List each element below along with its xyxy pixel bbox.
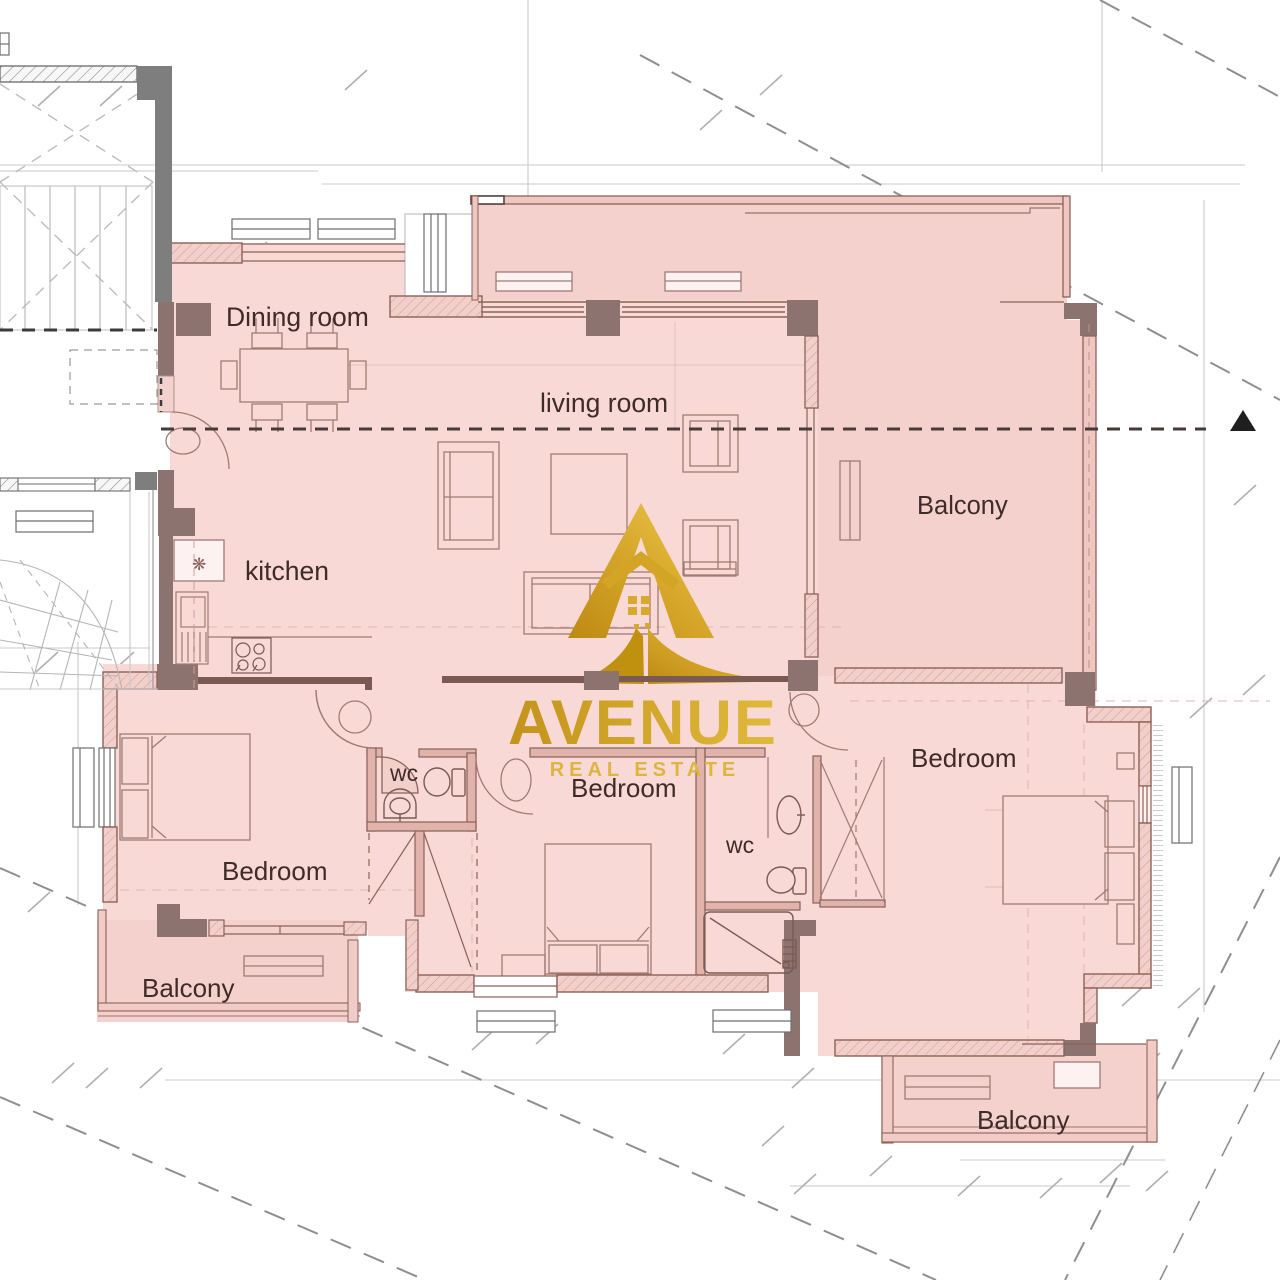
svg-text:living room: living room bbox=[540, 388, 668, 418]
svg-text:Dining room: Dining room bbox=[226, 302, 369, 332]
svg-text:Bedroom: Bedroom bbox=[222, 856, 328, 886]
svg-text:wc: wc bbox=[389, 760, 418, 786]
svg-text:Balcony: Balcony bbox=[142, 973, 235, 1003]
svg-text:wc: wc bbox=[725, 832, 754, 858]
svg-text:REAL ESTATE: REAL ESTATE bbox=[550, 759, 741, 781]
svg-text:Balcony: Balcony bbox=[977, 1105, 1070, 1135]
svg-text:kitchen: kitchen bbox=[245, 556, 329, 586]
svg-text:AVENUE: AVENUE bbox=[508, 688, 778, 758]
svg-text:Balcony: Balcony bbox=[917, 492, 1008, 520]
svg-text:Bedroom: Bedroom bbox=[911, 743, 1017, 773]
